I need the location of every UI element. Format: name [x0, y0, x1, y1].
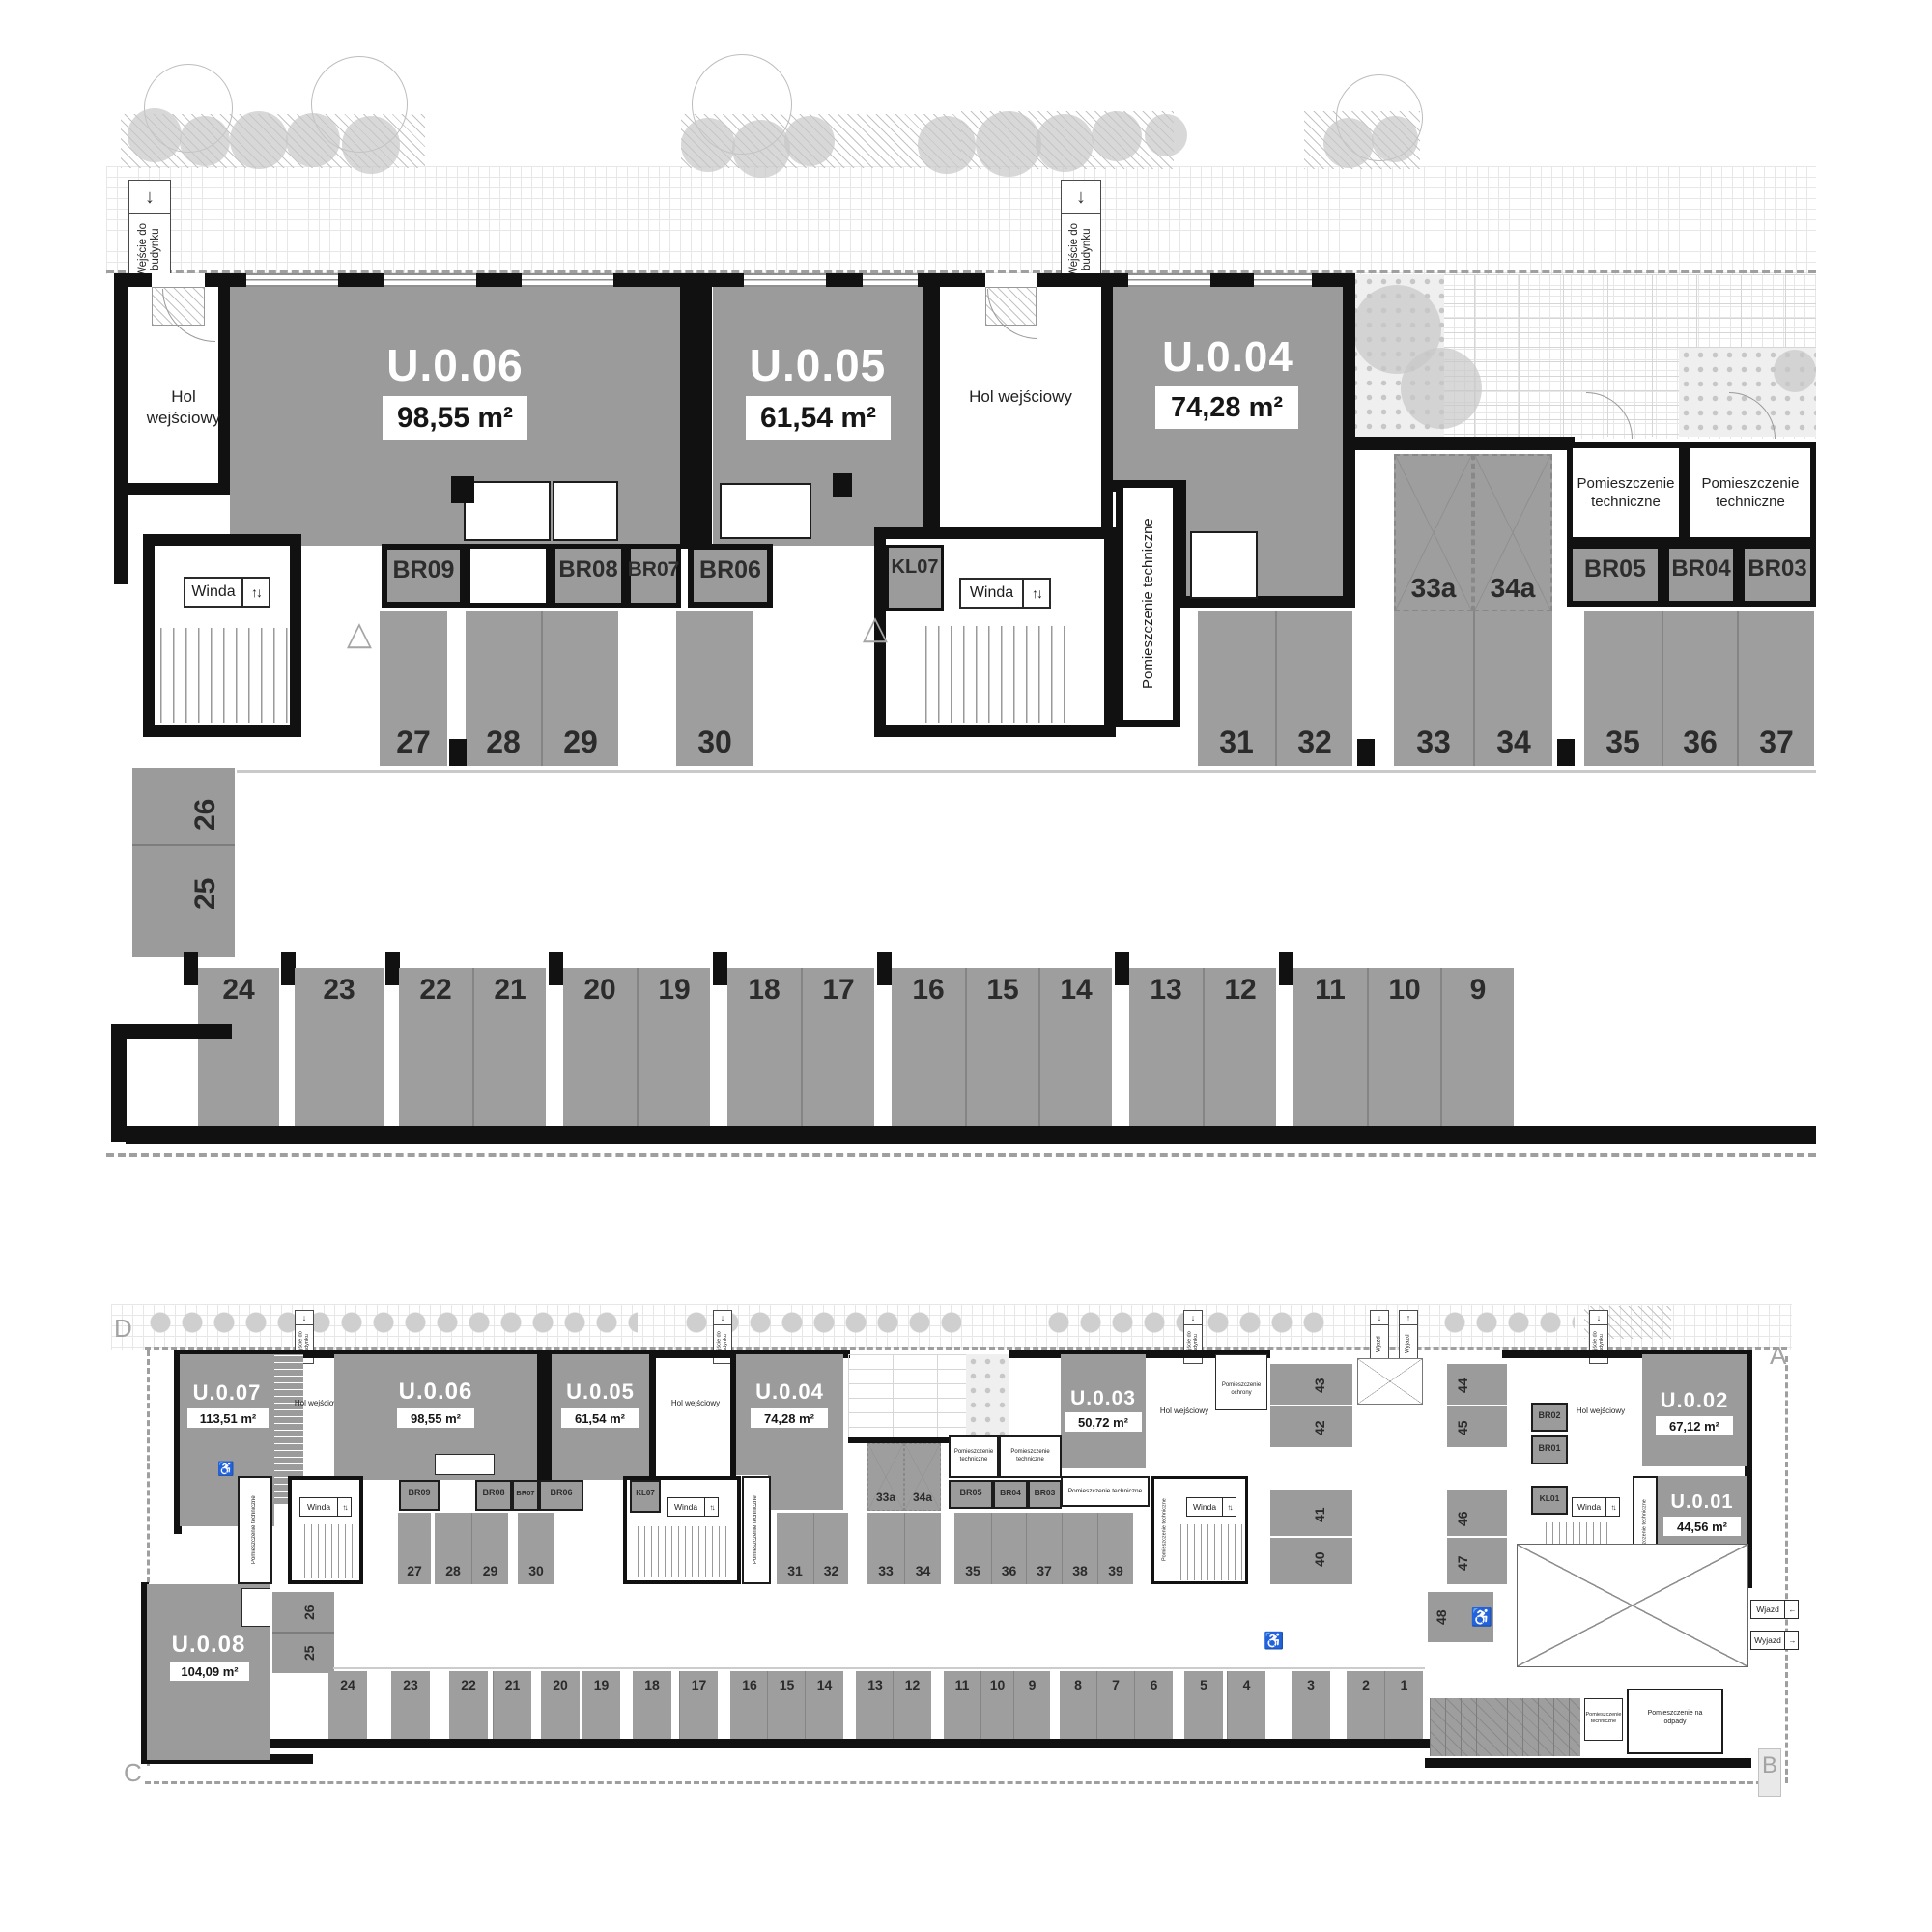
storage-br05-label: BR05 — [949, 1486, 993, 1499]
stairs — [1180, 1524, 1242, 1580]
column — [1557, 739, 1575, 766]
parking-space-26-label: 26 — [189, 788, 228, 840]
unit-u004-area: 74,28 m² — [751, 1408, 828, 1428]
parking-space-37[interactable]: 37 — [1026, 1513, 1062, 1584]
stairs — [925, 626, 1072, 723]
wall — [923, 273, 940, 549]
shrub-icon — [180, 116, 230, 166]
window — [384, 273, 476, 287]
storage-br05-label: BR05 — [1567, 554, 1663, 583]
unit-u003-area: 50,72 m² — [1065, 1412, 1142, 1432]
entrance-door-gap — [152, 273, 205, 287]
building-entrance-sign: ↓ Wejście do budynku — [128, 180, 171, 286]
marker-a: A — [1770, 1341, 1786, 1371]
pavement-grid — [106, 166, 1816, 274]
parking-space-33[interactable]: 33 — [867, 1513, 904, 1584]
parking-space-20[interactable]: 20 — [563, 968, 637, 1128]
bathroom — [464, 481, 551, 541]
column — [184, 952, 198, 985]
wall — [218, 273, 230, 494]
parking-space-36[interactable]: 36 — [991, 1513, 1026, 1584]
unit-u001-area: 44,56 m² — [1663, 1517, 1741, 1536]
technical-room-label: Pomieszczenie techniczne — [1155, 1488, 1175, 1573]
marker-b: B — [1762, 1752, 1777, 1779]
parking-space-47-label: 47 — [1455, 1548, 1480, 1578]
wheelchair-icon: ♿ — [1262, 1629, 1287, 1654]
parking-space-9[interactable]: 9 — [1013, 1671, 1050, 1739]
aisle-edge-line — [333, 1667, 1425, 1669]
shrub-icon — [342, 116, 400, 174]
triangle-icon: △ — [340, 614, 379, 653]
parking-space-25-label: 25 — [189, 867, 228, 920]
parking-space-15[interactable]: 15 — [767, 1671, 806, 1739]
parking-space-10[interactable]: 10 — [980, 1671, 1013, 1739]
shrub-icon — [681, 118, 735, 172]
unit-u005-area: 61,54 m² — [746, 396, 891, 440]
wyjazd-label: Wyjazd — [1751, 1632, 1784, 1649]
parking-space-23[interactable]: 23 — [295, 968, 384, 1128]
boundary-dashed-line — [106, 1153, 1816, 1157]
parking-space-19[interactable]: 19 — [637, 968, 710, 1128]
arrow-right-icon: → — [1784, 1632, 1798, 1649]
bathroom — [553, 481, 618, 541]
elevator-label: Winda — [668, 1498, 704, 1516]
technical-room-label: Pomieszczenie techniczne — [1066, 1482, 1144, 1501]
down-arrow-icon: ↓ — [1062, 181, 1100, 214]
storage-br01-label: BR01 — [1531, 1441, 1568, 1455]
wheelchair-icon: ♿ — [214, 1457, 238, 1480]
parking-space-32[interactable]: 32 — [813, 1513, 848, 1584]
security-room-label: Pomieszczenie ochrony — [1217, 1379, 1265, 1401]
shrub-icon — [128, 108, 182, 162]
technical-room-label: Pomieszczenie techniczne — [1003, 1445, 1058, 1468]
parking-space-36[interactable]: 36 — [1662, 611, 1737, 766]
shrub-icon — [286, 113, 340, 167]
wheelchair-icon: ♿ — [1468, 1602, 1495, 1633]
wall — [537, 1354, 552, 1480]
parking-space-34[interactable]: 34 — [904, 1513, 941, 1584]
bathroom — [241, 1588, 270, 1627]
unit-u006-area: 98,55 m² — [383, 396, 527, 440]
parking-space-31[interactable]: 31 — [1198, 611, 1275, 766]
entry-hall-label: Hol wejściowy — [1155, 1406, 1213, 1430]
unit-u001-label: U.0.01 — [1658, 1492, 1747, 1513]
elevator-label: Winda — [300, 1498, 337, 1516]
entry-hall-label: Hol wejściowy — [140, 386, 227, 437]
column — [549, 952, 563, 985]
parking-space-32[interactable]: 32 — [1275, 611, 1352, 766]
wjazd-label: Wjazd — [1751, 1601, 1784, 1618]
parking-space-14[interactable]: 14 — [1038, 968, 1112, 1128]
entrance-door-gap — [985, 273, 1037, 287]
elevator-arrows-icon: ↑↓ — [704, 1498, 718, 1516]
wall — [114, 483, 230, 495]
ramp-canopy — [1517, 1544, 1748, 1667]
unit-u004[interactable] — [768, 1475, 843, 1510]
wall — [1343, 437, 1575, 450]
elevator: Winda ↑↓ — [667, 1497, 719, 1517]
parking-space-13[interactable]: 13 — [856, 1671, 895, 1739]
technical-room-label: Pomieszczenie techniczne — [745, 1482, 768, 1578]
unit-u004-label: U.0.04 — [736, 1379, 843, 1405]
unit-u005-area: 61,54 m² — [561, 1408, 639, 1428]
elevator-label: Winda — [185, 579, 241, 606]
unit-u005-label: U.0.05 — [713, 340, 923, 390]
shrub-icon — [1323, 118, 1374, 168]
parking-space-7[interactable]: 7 — [1096, 1671, 1134, 1739]
unit-u005-label: U.0.05 — [552, 1379, 649, 1405]
down-arrow-icon: ↓ — [296, 1311, 313, 1325]
shrub-icon — [784, 116, 835, 166]
parking-space-27[interactable]: 27 — [398, 1513, 431, 1584]
parking-space-30[interactable]: 30 — [518, 1513, 554, 1584]
unit-u002-area: 67,12 m² — [1656, 1416, 1733, 1435]
elevator-label: Winda — [1573, 1498, 1605, 1516]
wall — [114, 273, 128, 584]
parking-space-29[interactable]: 29 — [541, 611, 618, 766]
parking-space-6[interactable]: 6 — [1134, 1671, 1173, 1739]
vestibule — [466, 544, 551, 608]
parking-space-35[interactable]: 35 — [1584, 611, 1662, 766]
parking-space-39[interactable]: 39 — [1097, 1513, 1133, 1584]
elevator-arrows-icon: ↑↓ — [337, 1498, 351, 1516]
technical-room-label: Pomieszczenie techniczne — [1573, 471, 1679, 514]
technical-room-label: Pomieszczenie techniczne — [1121, 493, 1176, 715]
column — [833, 473, 852, 497]
storage-br09-label: BR09 — [382, 555, 466, 584]
parking-space-21[interactable]: 21 — [472, 968, 546, 1128]
gravel-area — [966, 1354, 1009, 1439]
entry-hall-label: Hol wejściowy — [940, 386, 1101, 437]
storage-br06-label: BR06 — [688, 555, 773, 584]
parking-space-28-highlighted[interactable]: 28 — [435, 1513, 471, 1584]
storage-br06-label: BR06 — [539, 1486, 583, 1499]
unit-u008-label: U.0.08 — [147, 1633, 270, 1658]
parking-space-33a[interactable]: 33a — [1394, 454, 1473, 611]
parking-space-37[interactable]: 37 — [1737, 611, 1814, 766]
storage-br08-label: BR08 — [551, 555, 626, 584]
tree-icon — [1774, 350, 1816, 392]
unit-u006-area: 98,55 m² — [397, 1408, 474, 1428]
stairs — [298, 1524, 355, 1578]
parking-space-28-highlighted[interactable]: 28 — [466, 611, 541, 766]
elevator-arrows-icon: ↑↓ — [1022, 580, 1049, 607]
up-arrow-icon: ↑ — [1400, 1311, 1417, 1325]
storage-br07-label: BR07 — [512, 1486, 539, 1499]
shrub-icon — [732, 120, 790, 178]
parking-space-25-label: 25 — [301, 1638, 325, 1667]
parking-space-27[interactable]: 27 — [380, 611, 447, 766]
column — [385, 952, 400, 985]
marker-c: C — [124, 1758, 142, 1788]
technical-room-label: Pomieszczenie techniczne — [241, 1482, 269, 1578]
elevator: Winda ↑↓ — [1572, 1497, 1620, 1517]
parking-space-8[interactable]: 8 — [1060, 1671, 1096, 1739]
elevator-arrows-icon: ↑↓ — [1605, 1498, 1619, 1516]
parking-space-48-label: 48 — [1434, 1600, 1457, 1634]
window — [522, 273, 613, 287]
arrow-left-icon: ← — [1784, 1601, 1798, 1618]
parking-space-40-label: 40 — [1312, 1544, 1337, 1575]
technical-room-label: Pomieszczenie techniczne — [951, 1445, 997, 1468]
parking-space-29[interactable]: 29 — [471, 1513, 508, 1584]
storage-br09-label: BR09 — [399, 1486, 440, 1499]
parking-space-18[interactable]: 18 — [727, 968, 801, 1128]
parking-space-17[interactable]: 17 — [801, 968, 874, 1128]
room-kl07-label: KL07 — [886, 554, 944, 580]
shrub-icon — [1092, 111, 1142, 161]
stairs — [160, 628, 288, 723]
technical-room-label: Pomieszczenie techniczne — [1692, 471, 1808, 514]
wall — [1425, 1758, 1751, 1768]
unit-u002-label: U.0.02 — [1642, 1389, 1747, 1412]
elevator: Winda ↑↓ — [299, 1497, 352, 1517]
parking-space-38[interactable]: 38 — [1062, 1513, 1097, 1584]
tree-icon — [1401, 348, 1482, 429]
parking-space-9[interactable]: 9 — [1440, 968, 1514, 1128]
wall — [649, 1354, 656, 1480]
column — [451, 476, 474, 503]
column — [449, 739, 467, 766]
parking-space-20[interactable]: 20 — [541, 1671, 580, 1739]
wall — [111, 1024, 127, 1142]
parking-space-10[interactable]: 10 — [1367, 968, 1440, 1128]
room-kl01-label: KL01 — [1531, 1492, 1568, 1505]
bike-racks — [1430, 1698, 1580, 1756]
window — [1128, 273, 1210, 287]
wall — [111, 1024, 232, 1039]
elevator-label: Winda — [961, 580, 1022, 607]
storage-br03-label: BR03 — [1028, 1486, 1062, 1499]
column — [1357, 739, 1375, 766]
parking-space-16[interactable]: 16 — [892, 968, 965, 1128]
entry-hall-label: Hol wejściowy — [1571, 1406, 1631, 1430]
parking-space-13[interactable]: 13 — [1129, 968, 1203, 1128]
parking-divider — [1447, 1405, 1507, 1406]
down-arrow-icon: ↓ — [129, 181, 170, 214]
boundary-dashed-line — [145, 1781, 1779, 1784]
building-entrance-sign: ↓ Wejście do budynku — [1061, 180, 1101, 286]
down-arrow-icon: ↓ — [1371, 1311, 1388, 1325]
shrub-icon — [1036, 114, 1094, 172]
bathroom — [720, 483, 811, 539]
down-arrow-icon: ↓ — [1184, 1311, 1202, 1325]
column — [713, 952, 727, 985]
parking-space-12[interactable]: 12 — [1203, 968, 1276, 1128]
parking-space-33[interactable]: 33 — [1394, 611, 1473, 766]
storage-br04-label: BR04 — [993, 1486, 1028, 1499]
parking-divider — [132, 844, 235, 846]
driveway-out-sign: ↑ Wyjazd — [1399, 1310, 1418, 1364]
tree-row — [145, 1306, 638, 1339]
parking-space-2[interactable]: 2 — [1347, 1671, 1385, 1739]
unit-u003[interactable] — [1061, 1354, 1146, 1468]
down-arrow-icon: ↓ — [714, 1311, 731, 1325]
parking-space-34a[interactable]: 34a — [904, 1443, 941, 1511]
door-arc — [162, 289, 215, 342]
unit-u007-area: 113,51 m² — [187, 1408, 269, 1428]
parking-space-24[interactable]: 24 — [328, 1671, 367, 1739]
parking-space-19[interactable]: 19 — [582, 1671, 620, 1739]
parking-space-18[interactable]: 18 — [633, 1671, 671, 1739]
driveway-in-sign: Wjazd ← — [1750, 1600, 1799, 1619]
parking-space-34a[interactable]: 34a — [1473, 454, 1552, 611]
parking-space-12[interactable]: 12 — [893, 1671, 931, 1739]
parking-space-1[interactable]: 1 — [1384, 1671, 1423, 1739]
parking-space-42-label: 42 — [1312, 1412, 1337, 1443]
elevator: Winda ↑↓ — [184, 577, 270, 608]
parking-space-45-label: 45 — [1455, 1412, 1480, 1443]
parking-space-44-label: 44 — [1455, 1370, 1480, 1401]
parking-space-30[interactable]: 30 — [676, 611, 753, 766]
stairs — [638, 1526, 726, 1577]
driveway-out-sign: Wyjazd → — [1750, 1631, 1799, 1650]
unit-u006-label: U.0.06 — [334, 1379, 537, 1405]
bathroom — [435, 1454, 495, 1475]
room-kl07-label: KL07 — [630, 1486, 661, 1499]
storage-br04-label: BR04 — [1663, 554, 1739, 583]
elevator-arrows-icon: ↑↓ — [1222, 1498, 1236, 1516]
wall — [1101, 273, 1113, 549]
parking-space-23[interactable]: 23 — [391, 1671, 430, 1739]
parking-space-3[interactable]: 3 — [1292, 1671, 1330, 1739]
parking-space-26-label: 26 — [301, 1598, 325, 1627]
parking-space-22[interactable]: 22 — [399, 968, 472, 1128]
unit-u003-label: U.0.03 — [1061, 1387, 1146, 1410]
parking-space-35[interactable]: 35 — [954, 1513, 991, 1584]
elevator: Winda ↑↓ — [959, 578, 1051, 609]
storage-br07-label: BR07 — [626, 555, 681, 584]
bathroom — [1190, 531, 1258, 599]
parking-space-21[interactable]: 21 — [493, 1671, 531, 1739]
parking-divider — [1447, 1536, 1507, 1538]
parking-space-31[interactable]: 31 — [777, 1513, 813, 1584]
driveway-in-sign: ↓ Wjazd — [1370, 1310, 1389, 1364]
entrance-ramp — [1357, 1358, 1423, 1405]
parking-space-41-label: 41 — [1312, 1499, 1337, 1530]
shrub-icon — [230, 111, 288, 169]
parking-space-24[interactable]: 24 — [198, 968, 279, 1128]
parking-space-14[interactable]: 14 — [805, 1671, 843, 1739]
column — [281, 952, 296, 985]
parking-divider — [1270, 1536, 1352, 1538]
shrub-icon — [976, 111, 1041, 177]
aisle-edge-line — [237, 770, 1816, 773]
boundary-dashed-line — [145, 1347, 1787, 1350]
parking-space-4[interactable]: 4 — [1227, 1671, 1265, 1739]
parking-space-43-label: 43 — [1312, 1370, 1337, 1401]
parking-space-22[interactable]: 22 — [449, 1671, 488, 1739]
column — [877, 952, 892, 985]
parking-space-15[interactable]: 15 — [965, 968, 1038, 1128]
parking-space-17[interactable]: 17 — [679, 1671, 718, 1739]
unit-u004-label: U.0.04 — [1113, 333, 1343, 382]
elevator-label: Winda — [1187, 1498, 1222, 1516]
shrub-icon — [918, 116, 976, 174]
parking-space-34[interactable]: 34 — [1473, 611, 1552, 766]
window — [863, 273, 918, 287]
parking-space-33a[interactable]: 33a — [867, 1443, 904, 1511]
parking-divider — [1270, 1405, 1352, 1406]
wall — [680, 273, 712, 549]
elevator: Winda ↑↓ — [1186, 1497, 1236, 1517]
parking-space-11[interactable]: 11 — [944, 1671, 980, 1739]
door-arc — [987, 289, 1037, 339]
parking-space-5[interactable]: 5 — [1184, 1671, 1223, 1739]
down-arrow-icon: ↓ — [1590, 1311, 1607, 1325]
parking-space-11[interactable]: 11 — [1293, 968, 1367, 1128]
shrub-icon — [1372, 116, 1418, 162]
column — [1279, 952, 1293, 985]
elevator-arrows-icon: ↑↓ — [241, 579, 269, 606]
entry-hall-label: Hol wejściowy — [667, 1399, 724, 1422]
column — [1115, 952, 1129, 985]
storage-br02-label: BR02 — [1531, 1408, 1568, 1422]
boundary-dashed-line — [1785, 1356, 1788, 1783]
floorplan-page: ↓ Wejście do budynku ↓ Wejście do budynk… — [0, 0, 1932, 1932]
unit-u007-label: U.0.07 — [180, 1381, 274, 1405]
unit-u006-label: U.0.06 — [230, 340, 680, 390]
unit-u004-area: 74,28 m² — [1155, 386, 1298, 429]
window — [246, 273, 338, 287]
wall — [126, 1126, 1816, 1144]
marker-d: D — [114, 1314, 132, 1344]
unit-u008-area: 104,09 m² — [170, 1662, 249, 1681]
triangle-icon: △ — [856, 609, 895, 647]
window — [1254, 273, 1312, 287]
parking-space-46-label: 46 — [1455, 1503, 1480, 1534]
shrub-icon — [1145, 114, 1187, 156]
storage-br03-label: BR03 — [1739, 554, 1816, 583]
storage-br08-label: BR08 — [475, 1486, 512, 1499]
window — [744, 273, 826, 287]
waste-room-label: Pomieszczenie na odpady — [1642, 1706, 1708, 1729]
parking-divider — [272, 1632, 334, 1634]
wall — [241, 1739, 1430, 1748]
parking-space-16[interactable]: 16 — [730, 1671, 769, 1739]
technical-room-label: Pomieszczenie techniczne — [1585, 1708, 1622, 1729]
tree-row — [1439, 1306, 1575, 1339]
